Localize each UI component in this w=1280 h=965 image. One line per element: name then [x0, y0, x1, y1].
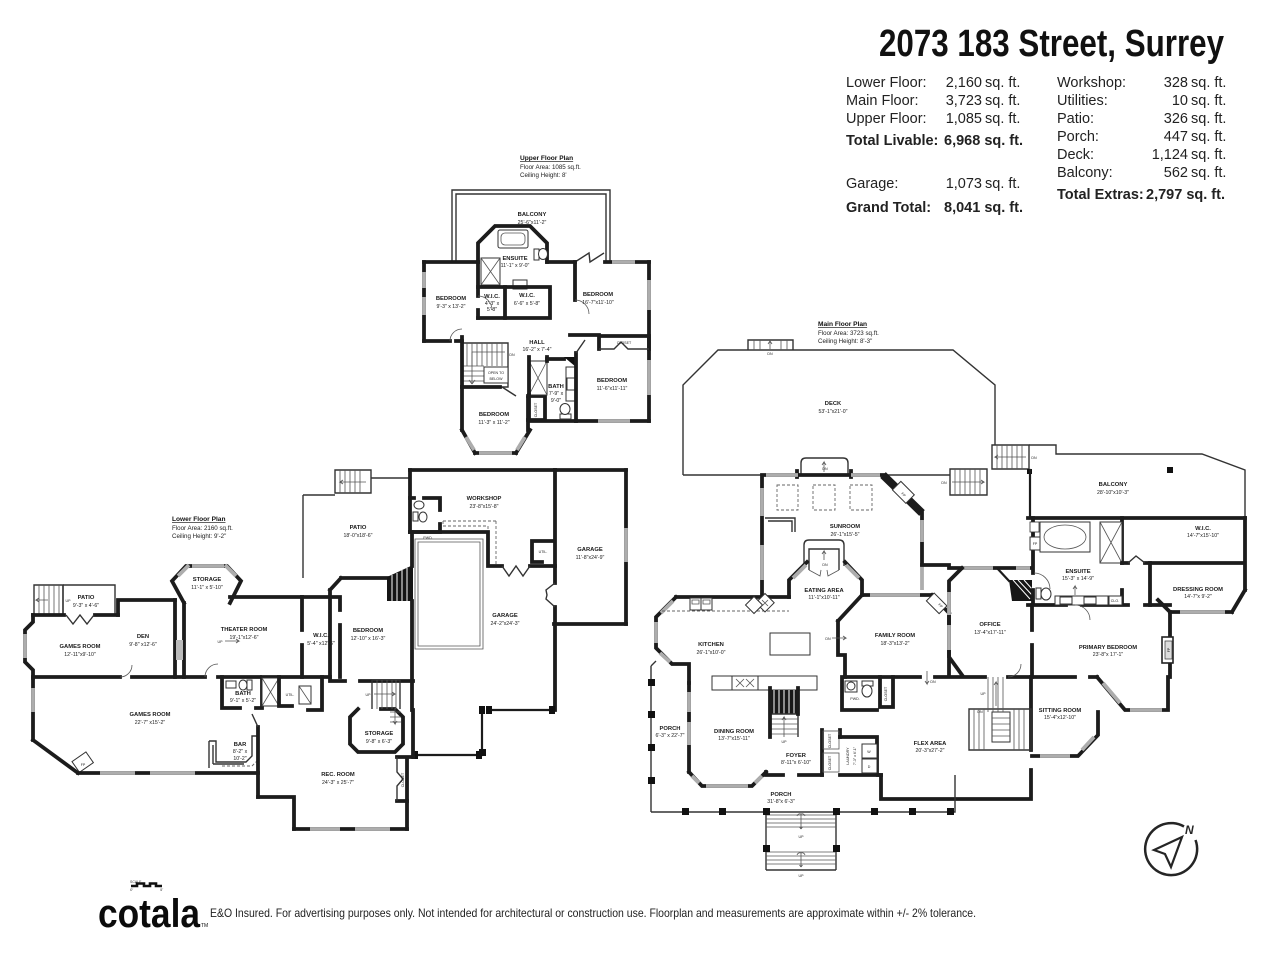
svg-text:D: D	[868, 765, 871, 769]
svg-text:9'-0": 9'-0"	[551, 398, 561, 404]
svg-text:18'-3"x13'-2": 18'-3"x13'-2"	[880, 641, 909, 647]
svg-text:BALCONY: BALCONY	[518, 212, 547, 218]
svg-text:24'-2"x24'-3": 24'-2"x24'-3"	[490, 621, 519, 627]
svg-text:sq. ft.: sq. ft.	[1191, 165, 1226, 181]
svg-text:GAMES ROOM: GAMES ROOM	[60, 644, 101, 650]
svg-text:12'-10" x 16'-3": 12'-10" x 16'-3"	[351, 636, 386, 642]
svg-text:sq. ft.: sq. ft.	[985, 93, 1020, 109]
svg-text:562: 562	[1164, 165, 1188, 181]
svg-text:FOYER: FOYER	[786, 753, 807, 759]
svg-text:CLOSET: CLOSET	[617, 341, 632, 345]
svg-text:24'-3" x 25'-7": 24'-3" x 25'-7"	[322, 780, 354, 786]
svg-text:16'-2" x 7'-4": 16'-2" x 7'-4"	[522, 347, 551, 353]
svg-text:UTIL.: UTIL.	[539, 550, 548, 554]
svg-text:STORAGE: STORAGE	[193, 577, 222, 583]
svg-text:22'-7" x15'-2": 22'-7" x15'-2"	[135, 720, 166, 726]
svg-text:28'-10"x10'-3": 28'-10"x10'-3"	[1097, 490, 1129, 496]
svg-text:BEDROOM: BEDROOM	[479, 412, 509, 418]
svg-text:THEATER ROOM: THEATER ROOM	[221, 627, 268, 633]
svg-text:13'-7"x15'-11": 13'-7"x15'-11"	[718, 736, 750, 742]
svg-text:TM: TM	[201, 923, 208, 929]
svg-text:PATIO: PATIO	[78, 595, 95, 601]
svg-text:UP: UP	[218, 640, 224, 644]
svg-text:UP: UP	[366, 693, 372, 697]
svg-text:1,124: 1,124	[1152, 147, 1188, 163]
svg-text:Ceiling Height: 8': Ceiling Height: 8'	[520, 172, 567, 179]
svg-text:11'-6"x11'-11": 11'-6"x11'-11"	[597, 386, 628, 392]
svg-text:Floor Area: 3723 sq.ft.: Floor Area: 3723 sq.ft.	[818, 330, 879, 337]
svg-text:PRIMARY BEDROOM: PRIMARY BEDROOM	[1079, 645, 1137, 651]
svg-text:UP: UP	[782, 740, 788, 744]
svg-text:sq. ft.: sq. ft.	[985, 111, 1020, 127]
svg-text:7'-9" x: 7'-9" x	[549, 391, 564, 397]
svg-text:11'-8"x24'-9": 11'-8"x24'-9"	[576, 555, 605, 561]
svg-text:9'-8" x12'-6": 9'-8" x12'-6"	[129, 642, 157, 648]
svg-text:9'-8" x 6'-3": 9'-8" x 6'-3"	[366, 739, 392, 745]
svg-text:KITCHEN: KITCHEN	[698, 642, 724, 648]
svg-text:HALL: HALL	[529, 340, 545, 346]
svg-text:7'-3" x 6'-1": 7'-3" x 6'-1"	[853, 746, 857, 765]
svg-text:12'-11"x9'-10": 12'-11"x9'-10"	[64, 652, 96, 658]
svg-text:SUNROOM: SUNROOM	[830, 524, 860, 530]
svg-text:18'-0"x18'-6": 18'-0"x18'-6"	[343, 533, 372, 539]
svg-text:8,041 sq. ft.: 8,041 sq. ft.	[944, 200, 1023, 216]
svg-text:9'-1" x 5'-2": 9'-1" x 5'-2"	[230, 698, 256, 704]
svg-text:Patio:: Patio:	[1057, 111, 1094, 127]
svg-text:DINING ROOM: DINING ROOM	[714, 729, 754, 735]
svg-text:8'-2" x: 8'-2" x	[233, 749, 248, 755]
svg-text:sq. ft.: sq. ft.	[985, 176, 1020, 192]
svg-text:1,085: 1,085	[946, 111, 982, 127]
svg-text:BEDROOM: BEDROOM	[597, 378, 627, 384]
svg-text:BELOW: BELOW	[490, 377, 504, 381]
svg-text:sq. ft.: sq. ft.	[1191, 93, 1226, 109]
svg-text:Porch:: Porch:	[1057, 129, 1099, 145]
svg-text:CLOSET: CLOSET	[401, 772, 405, 787]
svg-text:DN: DN	[1031, 456, 1037, 460]
svg-text:REC. ROOM: REC. ROOM	[321, 772, 355, 778]
svg-text:9'-3" x 13'-2": 9'-3" x 13'-2"	[436, 304, 465, 310]
svg-text:CLOSET: CLOSET	[884, 686, 888, 701]
svg-text:PWD.: PWD.	[850, 697, 859, 701]
svg-text:Main Floor:: Main Floor:	[846, 93, 919, 109]
svg-text:Total Livable:: Total Livable:	[846, 133, 938, 149]
svg-text:BAR: BAR	[234, 742, 247, 748]
svg-text:23'-8"x 17'-1": 23'-8"x 17'-1"	[1093, 652, 1124, 658]
svg-text:15'-3" x 14'-9": 15'-3" x 14'-9"	[1062, 576, 1094, 582]
svg-text:10: 10	[1172, 93, 1188, 109]
svg-text:sq. ft.: sq. ft.	[1191, 111, 1226, 127]
svg-text:14'-7"x15'-10": 14'-7"x15'-10"	[1187, 533, 1219, 539]
svg-text:WORKSHOP: WORKSHOP	[467, 496, 502, 502]
svg-text:Ceiling Height: 9'-2": Ceiling Height: 9'-2"	[172, 533, 226, 540]
svg-text:DN: DN	[509, 353, 515, 357]
svg-text:sq. ft.: sq. ft.	[1191, 129, 1226, 145]
svg-text:GAMES ROOM: GAMES ROOM	[130, 712, 171, 718]
svg-text:DEN: DEN	[137, 634, 149, 640]
svg-text:BATH: BATH	[548, 384, 564, 390]
svg-text:LAUNDRY: LAUNDRY	[846, 747, 850, 765]
svg-text:15'-4"x12'-10": 15'-4"x12'-10"	[1044, 715, 1076, 721]
svg-text:11'-1" x 5'-10": 11'-1" x 5'-10"	[191, 585, 223, 591]
svg-text:11'-3" x 11'-2": 11'-3" x 11'-2"	[478, 420, 509, 426]
svg-text:26'-1"x15'-5": 26'-1"x15'-5"	[830, 532, 859, 538]
svg-text:cotala: cotala	[98, 892, 201, 936]
svg-text:Grand Total:: Grand Total:	[846, 200, 931, 216]
svg-text:6'-6" x 5'-8": 6'-6" x 5'-8"	[514, 301, 540, 307]
svg-text:FAMILY ROOM: FAMILY ROOM	[875, 633, 915, 639]
svg-text:326: 326	[1164, 111, 1188, 127]
svg-text:Lower Floor Plan: Lower Floor Plan	[172, 516, 226, 523]
svg-text:53'-1"x21'-0": 53'-1"x21'-0"	[818, 409, 847, 415]
svg-text:6,968 sq. ft.: 6,968 sq. ft.	[944, 133, 1023, 149]
svg-text:DN: DN	[930, 680, 936, 684]
svg-text:EATING AREA: EATING AREA	[804, 588, 844, 594]
svg-text:PORCH: PORCH	[771, 792, 792, 798]
svg-text:DN: DN	[977, 710, 983, 714]
svg-text:2,160: 2,160	[946, 75, 982, 91]
svg-text:CLOSET: CLOSET	[828, 755, 832, 770]
svg-text:11'-1" x 9'-0": 11'-1" x 9'-0"	[501, 263, 530, 269]
svg-text:DN: DN	[822, 467, 828, 471]
svg-text:W.I.C.: W.I.C.	[519, 293, 535, 299]
svg-text:DN: DN	[825, 637, 831, 641]
svg-text:Floor Area: 1085 sq.ft.: Floor Area: 1085 sq.ft.	[520, 164, 581, 171]
svg-text:OPEN TO: OPEN TO	[488, 371, 504, 375]
svg-text:ENSUITE: ENSUITE	[502, 256, 527, 262]
svg-text:13'-4"x17'-11": 13'-4"x17'-11"	[974, 630, 1006, 636]
svg-text:Garage:: Garage:	[846, 176, 898, 192]
svg-text:DN: DN	[822, 563, 828, 567]
svg-text:N: N	[1185, 823, 1194, 837]
svg-text:Ceiling Height: 8'-3": Ceiling Height: 8'-3"	[818, 338, 872, 345]
svg-text:BATH: BATH	[235, 691, 251, 697]
svg-text:1,073: 1,073	[946, 176, 982, 192]
svg-text:10'-2": 10'-2"	[233, 756, 246, 762]
svg-text:19'-1"x12'-6": 19'-1"x12'-6"	[229, 635, 258, 641]
svg-text:26'-1"x10'-0": 26'-1"x10'-0"	[696, 650, 725, 656]
svg-text:FP: FP	[1033, 542, 1038, 546]
svg-text:328: 328	[1164, 75, 1188, 91]
svg-text:BALCONY: BALCONY	[1099, 482, 1128, 488]
svg-text:W.I.C.: W.I.C.	[313, 633, 329, 639]
svg-text:CLOSET: CLOSET	[828, 733, 832, 748]
svg-text:BEDROOM: BEDROOM	[436, 296, 466, 302]
svg-text:8'-11"x 6'-10": 8'-11"x 6'-10"	[781, 760, 811, 766]
svg-text:Lower Floor:: Lower Floor:	[846, 75, 927, 91]
svg-text:SITTING ROOM: SITTING ROOM	[1039, 708, 1082, 714]
svg-text:UP: UP	[799, 835, 805, 839]
svg-text:Main Floor Plan: Main Floor Plan	[818, 321, 867, 328]
svg-text:UP: UP	[66, 599, 72, 603]
svg-text:W: W	[867, 750, 871, 754]
svg-text:6'-3" x 22'-7": 6'-3" x 22'-7"	[655, 733, 684, 739]
svg-text:GARAGE: GARAGE	[577, 547, 603, 553]
svg-text:DN: DN	[941, 481, 947, 485]
svg-text:BEDROOM: BEDROOM	[583, 292, 613, 298]
svg-text:sq. ft.: sq. ft.	[985, 75, 1020, 91]
svg-text:16'-7"x11'-10": 16'-7"x11'-10"	[582, 300, 614, 306]
svg-text:STORAGE: STORAGE	[365, 731, 394, 737]
svg-text:14'-7"x 9'-2": 14'-7"x 9'-2"	[1184, 594, 1212, 600]
svg-text:Balcony:: Balcony:	[1057, 165, 1113, 181]
svg-text:UP: UP	[981, 692, 987, 696]
svg-text:W.I.C.: W.I.C.	[1195, 526, 1211, 532]
svg-text:23'-8"x15'-8": 23'-8"x15'-8"	[469, 504, 498, 510]
svg-text:FLEX AREA: FLEX AREA	[914, 741, 947, 747]
svg-text:2073 183 Street, Surrey: 2073 183 Street, Surrey	[879, 23, 1224, 65]
svg-text:DRESSING ROOM: DRESSING ROOM	[1173, 587, 1223, 593]
svg-text:OFFICE: OFFICE	[979, 622, 1000, 628]
svg-text:ENSUITE: ENSUITE	[1065, 569, 1090, 575]
svg-text:Upper Floor Plan: Upper Floor Plan	[520, 155, 573, 162]
svg-text:Utilities:: Utilities:	[1057, 93, 1108, 109]
svg-text:DECK: DECK	[825, 401, 842, 407]
svg-text:UP: UP	[799, 874, 805, 878]
svg-text:447: 447	[1164, 129, 1188, 145]
svg-text:9'-3" x 4'-6": 9'-3" x 4'-6"	[73, 603, 99, 609]
svg-text:CLO.: CLO.	[1111, 599, 1119, 603]
svg-text:FP: FP	[1167, 647, 1171, 652]
svg-text:sq. ft.: sq. ft.	[1191, 75, 1226, 91]
svg-text:2,797 sq. ft.: 2,797 sq. ft.	[1146, 187, 1225, 203]
svg-text:Total Extras:: Total Extras:	[1057, 187, 1144, 203]
svg-text:E&O Insured. For advertising p: E&O Insured. For advertising purposes on…	[210, 906, 976, 920]
svg-text:3,723: 3,723	[946, 93, 982, 109]
svg-text:DN: DN	[767, 352, 773, 356]
svg-text:Deck:: Deck:	[1057, 147, 1094, 163]
svg-text:UTIL.: UTIL.	[286, 693, 295, 697]
svg-text:Workshop:: Workshop:	[1057, 75, 1126, 91]
svg-text:Upper Floor:: Upper Floor:	[846, 111, 927, 127]
svg-text:PATIO: PATIO	[350, 525, 367, 531]
svg-text:Floor Area: 2160 sq.ft.: Floor Area: 2160 sq.ft.	[172, 525, 233, 532]
svg-text:BEDROOM: BEDROOM	[353, 628, 383, 634]
svg-text:11'-1"x10'-11": 11'-1"x10'-11"	[808, 595, 839, 601]
svg-text:31'-8"x 6'-3": 31'-8"x 6'-3"	[767, 799, 795, 805]
svg-text:20'-3"x27'-2": 20'-3"x27'-2"	[915, 748, 944, 754]
svg-text:CLOSET: CLOSET	[534, 402, 538, 417]
svg-text:FP: FP	[81, 763, 86, 767]
svg-text:sq. ft.: sq. ft.	[1191, 147, 1226, 163]
svg-text:GARAGE: GARAGE	[492, 613, 518, 619]
svg-text:PORCH: PORCH	[660, 726, 681, 732]
